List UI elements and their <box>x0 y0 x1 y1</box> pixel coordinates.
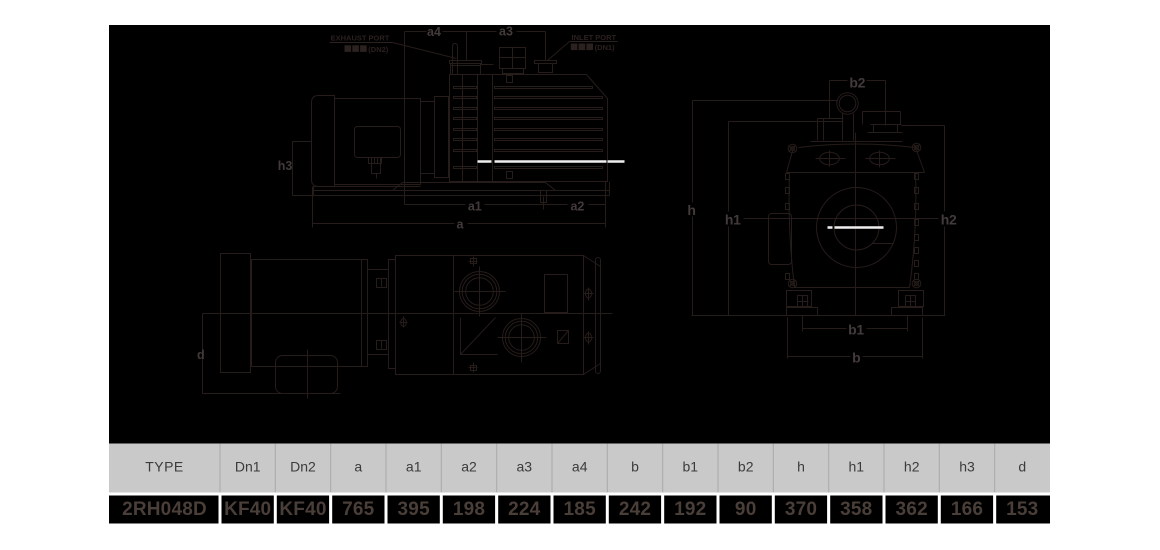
svg-text:90: 90 <box>735 499 757 520</box>
svg-text:EXHAUST PORT: EXHAUST PORT <box>331 34 390 43</box>
svg-text:765: 765 <box>342 499 375 520</box>
svg-text:KF40: KF40 <box>279 499 326 520</box>
svg-text:b: b <box>852 350 860 366</box>
svg-text:2RH048D: 2RH048D <box>122 499 207 520</box>
svg-text:INLET PORT: INLET PORT <box>572 33 617 42</box>
svg-text:242: 242 <box>619 499 651 520</box>
svg-text:b1: b1 <box>683 459 699 475</box>
svg-text:d: d <box>1018 459 1026 475</box>
svg-text:224: 224 <box>508 499 541 520</box>
svg-text:198: 198 <box>453 499 485 520</box>
svg-text:a2: a2 <box>570 200 584 214</box>
svg-text:a1: a1 <box>468 200 482 214</box>
svg-text:a3: a3 <box>517 459 533 475</box>
svg-text:153: 153 <box>1006 499 1038 520</box>
svg-text:b2: b2 <box>738 459 754 475</box>
svg-text:b2: b2 <box>849 75 865 91</box>
svg-text:a2: a2 <box>461 459 477 475</box>
svg-text:b: b <box>631 459 639 475</box>
svg-text:362: 362 <box>896 499 928 520</box>
svg-text:h: h <box>797 459 805 475</box>
svg-text:Dn1: Dn1 <box>235 459 261 475</box>
svg-text:h: h <box>687 202 695 218</box>
svg-text:KF40: KF40 <box>224 499 271 520</box>
svg-text:h3: h3 <box>959 459 975 475</box>
svg-text:TYPE: TYPE <box>145 459 184 475</box>
svg-text:b1: b1 <box>848 322 864 338</box>
svg-text:h1: h1 <box>725 212 741 228</box>
svg-text:h3: h3 <box>278 159 293 173</box>
svg-text:192: 192 <box>674 499 706 520</box>
svg-text:h1: h1 <box>849 459 865 475</box>
svg-text:166: 166 <box>951 499 983 520</box>
svg-text:d: d <box>197 348 205 362</box>
svg-text:a: a <box>354 459 362 475</box>
svg-text:a4: a4 <box>427 25 441 39</box>
svg-text:395: 395 <box>398 499 431 520</box>
svg-text:h2: h2 <box>904 459 920 475</box>
svg-text:(DN1): (DN1) <box>595 43 616 52</box>
svg-text:a4: a4 <box>572 459 588 475</box>
svg-text:h2: h2 <box>941 212 957 228</box>
svg-text:Dn2: Dn2 <box>290 459 316 475</box>
svg-text:185: 185 <box>564 499 597 520</box>
svg-text:(DN2): (DN2) <box>368 45 389 54</box>
svg-text:370: 370 <box>785 499 817 520</box>
svg-text:a1: a1 <box>406 459 422 475</box>
svg-text:a3: a3 <box>499 25 513 39</box>
svg-text:a: a <box>457 218 465 232</box>
svg-text:358: 358 <box>840 499 872 520</box>
